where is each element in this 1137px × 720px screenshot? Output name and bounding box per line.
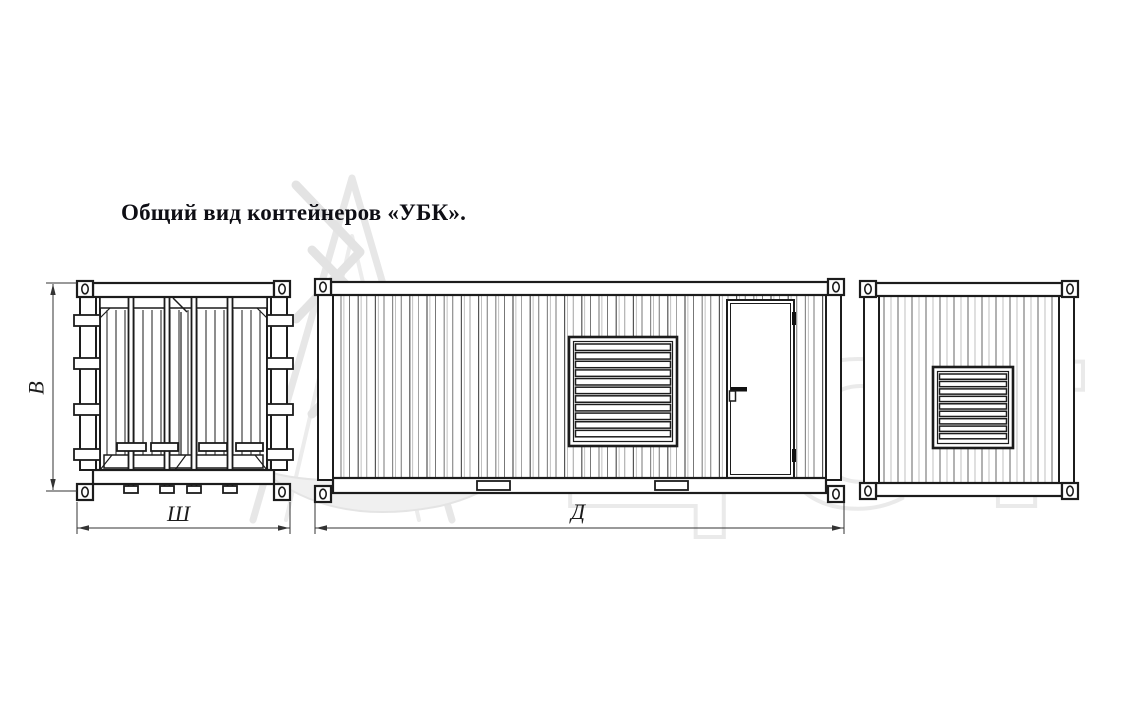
view-end-doors: [74, 281, 293, 500]
view-side: [315, 279, 844, 502]
dimension-label-width: Ш: [167, 503, 190, 525]
drawing-sheet: ЦСТ Общий вид контейнеров «УБК». В Ш Д: [0, 0, 1137, 720]
dimension-label-height: В: [26, 381, 48, 394]
end-louver: [933, 367, 1013, 448]
dimension-label-length: Д: [571, 501, 585, 523]
dimension-height: [46, 283, 77, 491]
side-louver: [569, 337, 677, 446]
side-door: [727, 300, 796, 478]
page-title: Общий вид контейнеров «УБК».: [121, 200, 466, 226]
view-end-grille: [860, 281, 1078, 499]
containers-technical-drawing: ЦСТ: [0, 0, 1137, 720]
